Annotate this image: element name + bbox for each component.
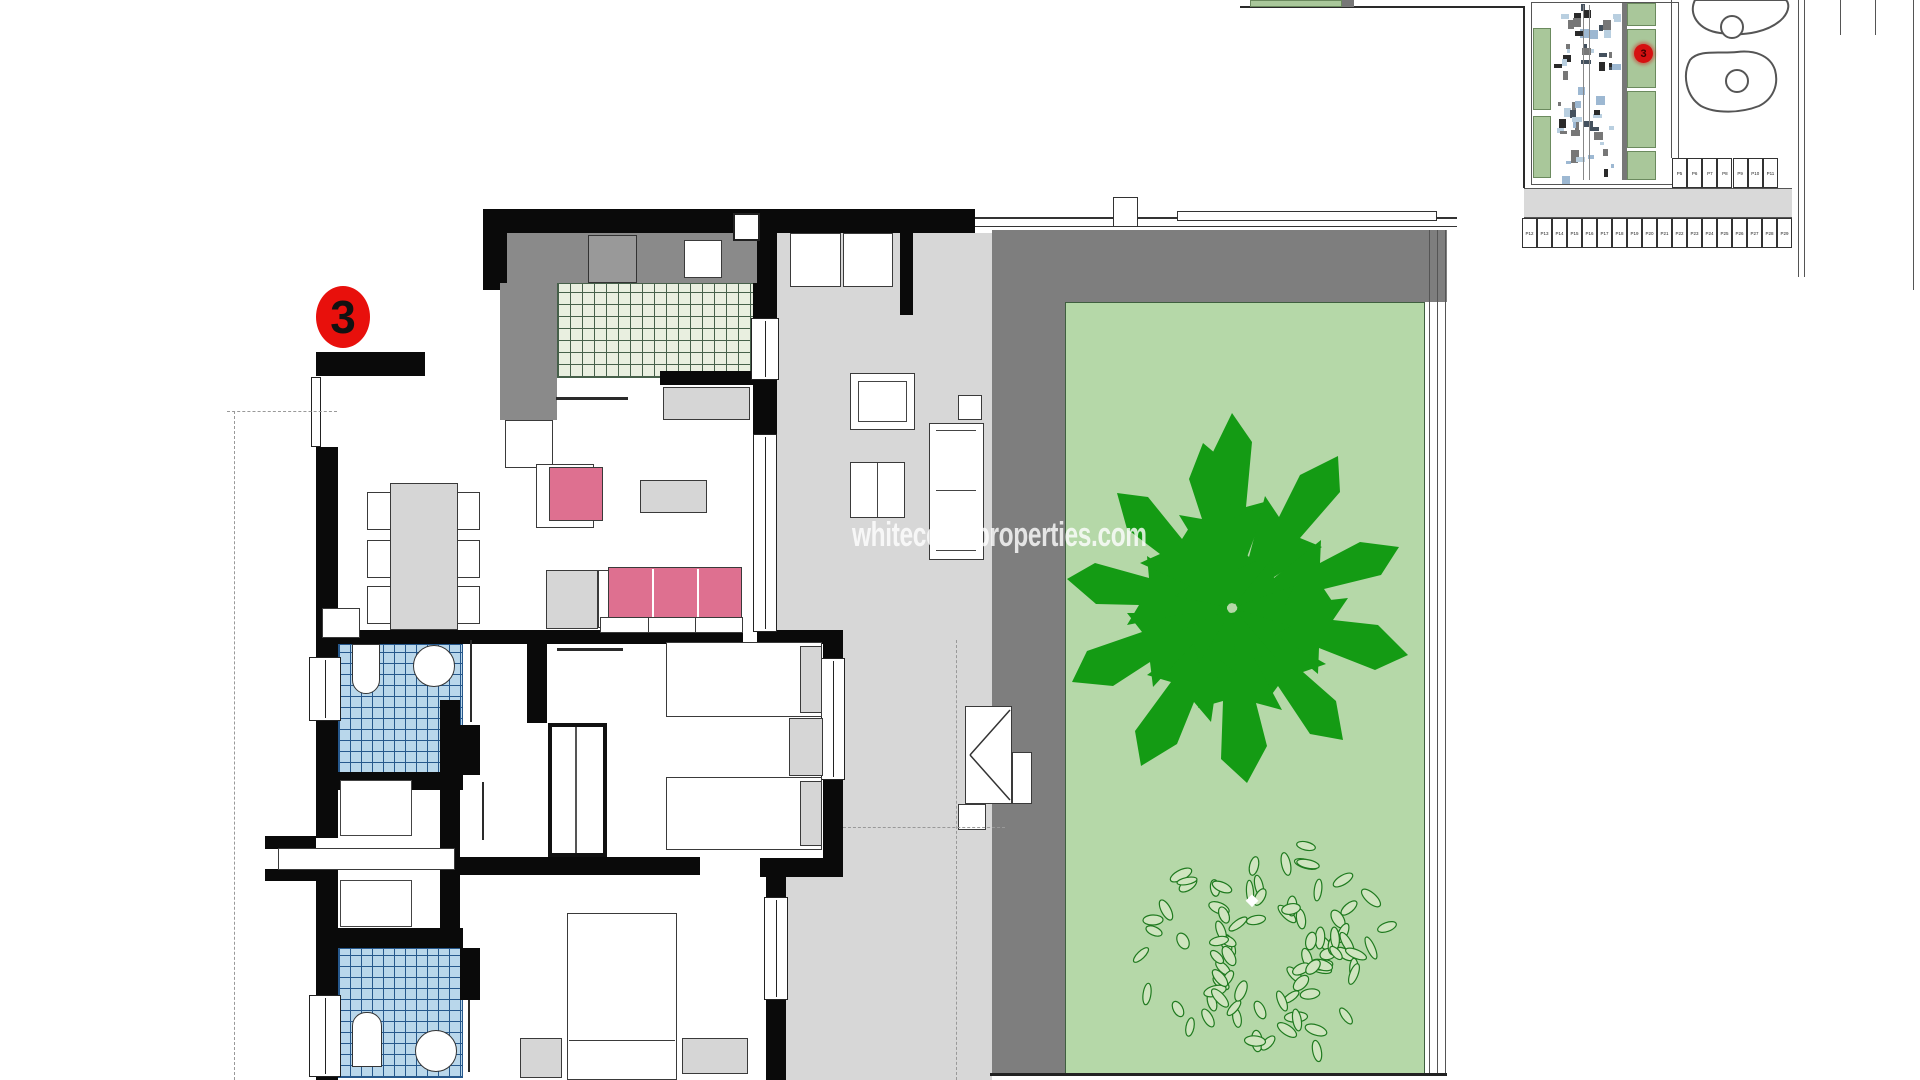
floorplan-page: whitecoastproperties.com 3 3 P5P6P7P8P9P… <box>0 0 1920 1080</box>
outdoor-shower-lines <box>0 0 1920 1080</box>
